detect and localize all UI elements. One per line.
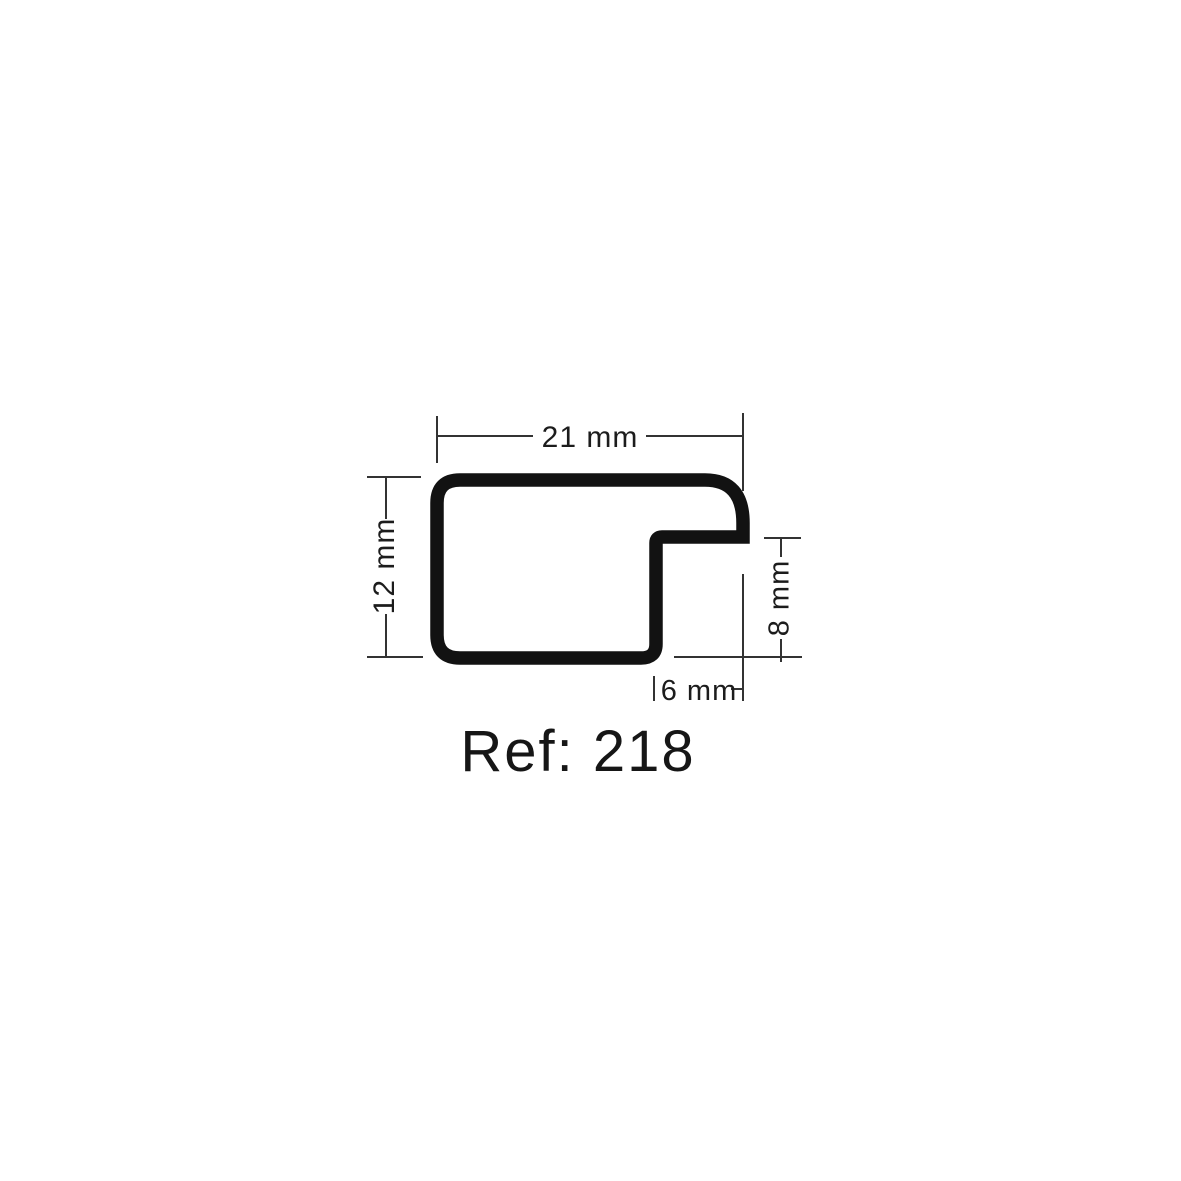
rabbet-height-dim-label: 8 mm bbox=[764, 560, 796, 637]
dimension-overall-height: 12 mm bbox=[367, 477, 423, 657]
width-dim-label: 21 mm bbox=[542, 421, 639, 454]
profile-outline-group bbox=[437, 480, 743, 658]
profile-outline bbox=[437, 480, 743, 658]
dimension-rabbet-height: 8 mm bbox=[674, 538, 802, 662]
height-dim-label: 12 mm bbox=[368, 518, 401, 615]
dimension-rabbet-width: 6 mm bbox=[654, 574, 743, 707]
ref-label: Ref: 218 bbox=[460, 719, 695, 784]
rabbet-width-dim-label: 6 mm bbox=[661, 675, 738, 707]
drawing-canvas: 21 mm 12 mm 8 mm 6 mm Ref: 218 bbox=[0, 0, 1181, 1181]
moulding-profile-diagram: 21 mm 12 mm 8 mm 6 mm Ref: 218 bbox=[0, 0, 1181, 1181]
